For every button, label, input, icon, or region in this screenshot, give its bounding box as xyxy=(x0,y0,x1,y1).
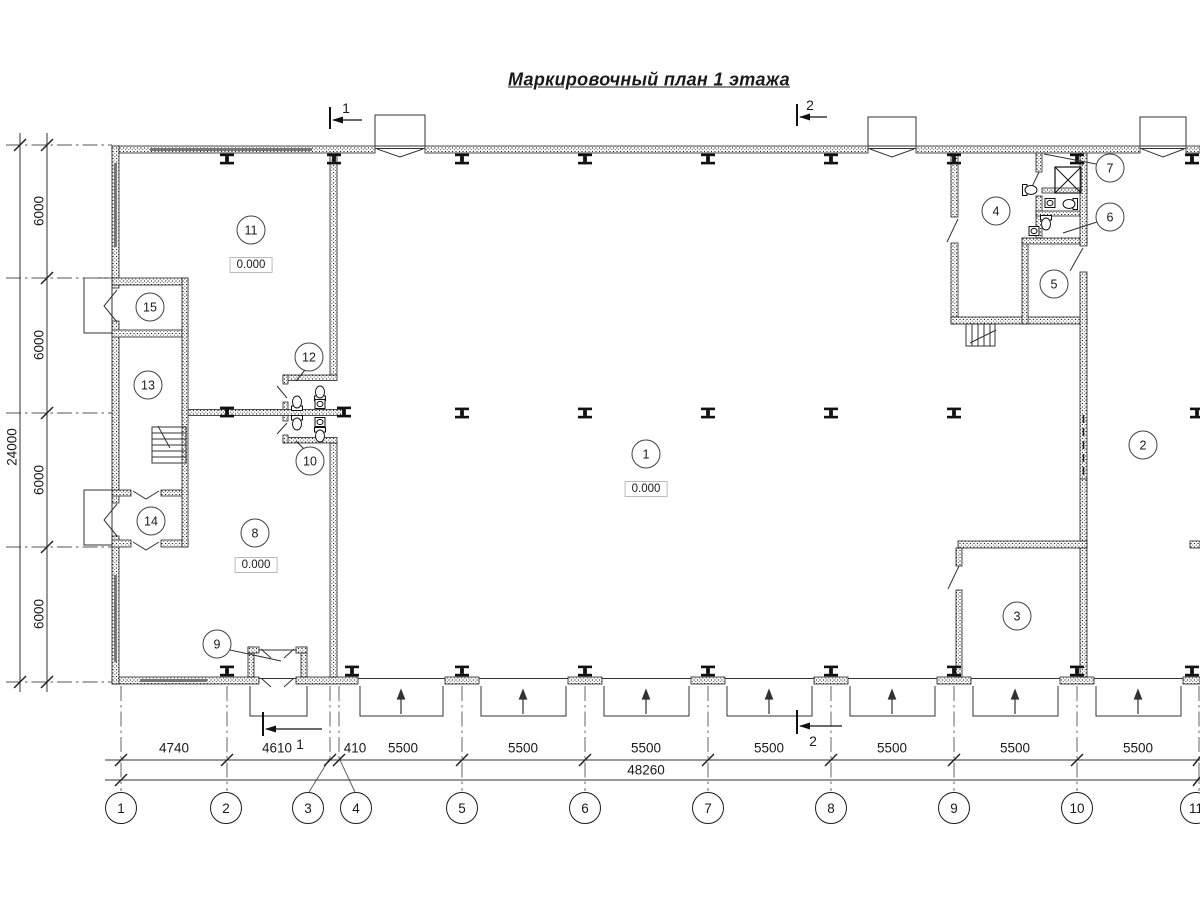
drawing-title: Маркировочный план 1 этажа xyxy=(508,70,790,91)
room-tag-5: 5 xyxy=(1040,270,1069,299)
section-marks xyxy=(263,104,842,736)
grid-bubble-10: 10 xyxy=(1061,792,1093,824)
dim-total-height: 24000 xyxy=(5,428,20,466)
room-tag-14: 14 xyxy=(137,507,166,536)
dim-row-3: 6000 xyxy=(32,465,47,495)
room-tag-13: 13 xyxy=(134,371,163,400)
dimension-ticks xyxy=(14,139,1200,786)
grid-bubble-5: 5 xyxy=(446,792,478,824)
dim-row-4: 6000 xyxy=(32,599,47,629)
grid-bubble-1: 1 xyxy=(105,792,137,824)
room-tag-10: 10 xyxy=(296,447,325,476)
dim-4-5: 5500 xyxy=(388,741,418,756)
grid-bubble-7: 7 xyxy=(692,792,724,824)
level-mark-room-11: 0.000 xyxy=(230,257,273,273)
dim-6-7: 5500 xyxy=(631,741,661,756)
level-mark-room-1: 0.000 xyxy=(625,481,668,497)
grid-bubble-8: 8 xyxy=(815,792,847,824)
level-mark-room-8: 0.000 xyxy=(235,557,278,573)
room-tag-6: 6 xyxy=(1096,203,1125,232)
section-mark-2-top: 2 xyxy=(806,97,814,113)
dim-7-8: 5500 xyxy=(754,741,784,756)
section-mark-2-bottom: 2 xyxy=(809,733,817,749)
entrance-arrows xyxy=(398,690,1142,714)
entrance-platforms xyxy=(250,686,1181,716)
room-tag-15: 15 xyxy=(136,293,165,322)
dim-row-1: 6000 xyxy=(32,196,47,226)
grid-bubble-9: 9 xyxy=(938,792,970,824)
room-tag-4: 4 xyxy=(982,197,1011,226)
columns xyxy=(220,154,1200,677)
room-tag-7: 7 xyxy=(1096,154,1125,183)
leader-lines xyxy=(230,154,1097,661)
section-mark-1-top: 1 xyxy=(342,100,350,116)
grid-bubble-4: 4 xyxy=(340,792,372,824)
room-tag-1: 1 xyxy=(632,440,661,469)
stairs xyxy=(152,324,996,463)
room-tag-9: 9 xyxy=(203,630,232,659)
room-tag-8: 8 xyxy=(241,519,270,548)
dim-3-4: 410 xyxy=(344,741,367,756)
room-tag-11: 11 xyxy=(237,216,266,245)
dim-total-width: 48260 xyxy=(627,763,665,778)
sanitary-fixtures xyxy=(292,167,1082,442)
dim-1-2: 4740 xyxy=(159,741,189,756)
grid-bubble-3: 3 xyxy=(292,792,324,824)
dim-10-11: 5500 xyxy=(1123,741,1153,756)
grid-bubble-2: 2 xyxy=(210,792,242,824)
room-tag-12: 12 xyxy=(295,343,324,372)
room-tag-2: 2 xyxy=(1129,431,1158,460)
grid-bend-leaders xyxy=(309,758,355,792)
grid-bubble-6: 6 xyxy=(569,792,601,824)
dim-row-2: 6000 xyxy=(32,330,47,360)
section-mark-1-bottom: 1 xyxy=(296,736,304,752)
floor-plan-sheet: Маркировочный план 1 этажа 1 2 1 2 1 2 3… xyxy=(0,0,1200,900)
dim-9-10: 5500 xyxy=(1000,741,1030,756)
dim-5-6: 5500 xyxy=(508,741,538,756)
floor-plan-drawing xyxy=(0,0,1200,900)
dim-8-9: 5500 xyxy=(877,741,907,756)
room-tag-3: 3 xyxy=(1003,602,1032,631)
dim-2-3: 4610 xyxy=(262,741,292,756)
